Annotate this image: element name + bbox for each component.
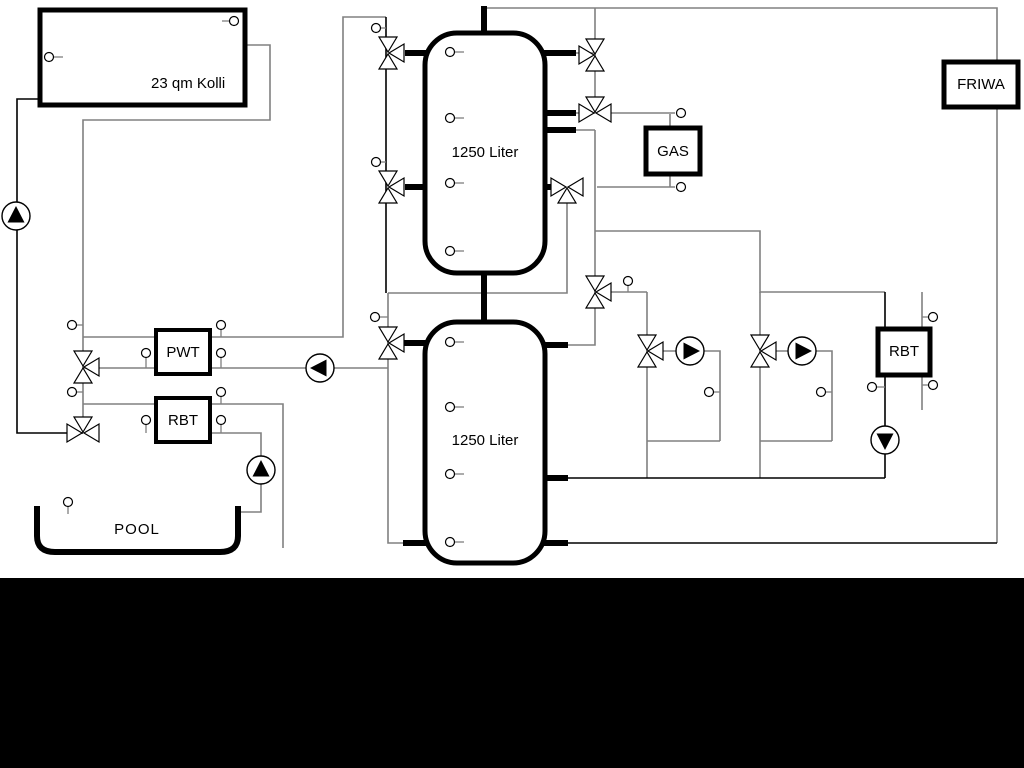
tank-bottom-label: 1250 Liter (425, 433, 545, 448)
pipe-collector-return (17, 99, 83, 433)
temp-sensor-icon (142, 349, 151, 369)
pwt-label: PWT (156, 345, 210, 360)
three-way-valve-icon (551, 178, 583, 203)
three-way-valve-icon (579, 39, 604, 71)
temp-sensor-icon (372, 158, 387, 167)
three-way-valve-icon (379, 37, 404, 69)
three-way-valve-icon (379, 327, 404, 359)
three-way-valve-icon (379, 171, 404, 203)
temp-sensor-icon (372, 24, 387, 33)
pipe-heating-header (595, 231, 885, 292)
pipe-tank1-lower-out (567, 130, 595, 345)
temp-sensor-icon (217, 388, 226, 405)
pump-down-icon (871, 426, 899, 454)
temp-sensor-icon (868, 383, 886, 392)
rbt-left-label: RBT (156, 413, 210, 428)
temp-sensor-icon (217, 416, 226, 434)
pump-up-icon (247, 456, 275, 484)
three-way-valve-icon (74, 351, 99, 383)
temp-sensor-icon (705, 388, 721, 397)
temp-sensor-icon (677, 183, 686, 192)
pipe-top-header (484, 8, 997, 543)
pump-right-icon (676, 337, 704, 365)
temp-sensor-icon (922, 381, 938, 390)
three-way-valve-icon (751, 335, 776, 367)
temp-sensor-icon (68, 388, 84, 397)
bottom-black-bar (0, 578, 1024, 768)
temp-sensor-icon (217, 321, 226, 338)
temp-sensor-icon (68, 321, 84, 330)
devices (37, 10, 1018, 563)
three-way-valve-icon (638, 335, 663, 367)
three-way-valve-icon (67, 417, 99, 442)
temp-sensor-icon (217, 349, 226, 369)
hydraulic-schematic: 23 qm Kolli 1250 Liter 1250 Liter PWT RB… (0, 0, 1024, 768)
tank-top-label: 1250 Liter (425, 145, 545, 160)
temp-sensor-icon (817, 388, 833, 397)
temp-sensor-icon (624, 277, 633, 293)
temp-sensor-icon (371, 313, 389, 322)
collector-label: 23 qm Kolli (151, 76, 225, 91)
temp-sensor-icon (142, 416, 151, 434)
rbt-right-label: RBT (878, 344, 930, 359)
pipe-branch1 (610, 292, 720, 478)
pump-left-icon (306, 354, 334, 382)
pipe-branch2 (760, 292, 832, 478)
temp-sensor-icon (677, 109, 686, 118)
pump-up-icon (2, 202, 30, 230)
friwa-label: FRIWA (944, 77, 1018, 92)
pool-label: POOL (77, 522, 197, 537)
pump-right-icon (788, 337, 816, 365)
temp-sensor-icon (922, 313, 938, 322)
three-way-valve-icon (579, 97, 611, 122)
three-way-valve-icon (586, 276, 611, 308)
temp-sensor-icon (64, 498, 73, 515)
gas-label: GAS (646, 144, 700, 159)
